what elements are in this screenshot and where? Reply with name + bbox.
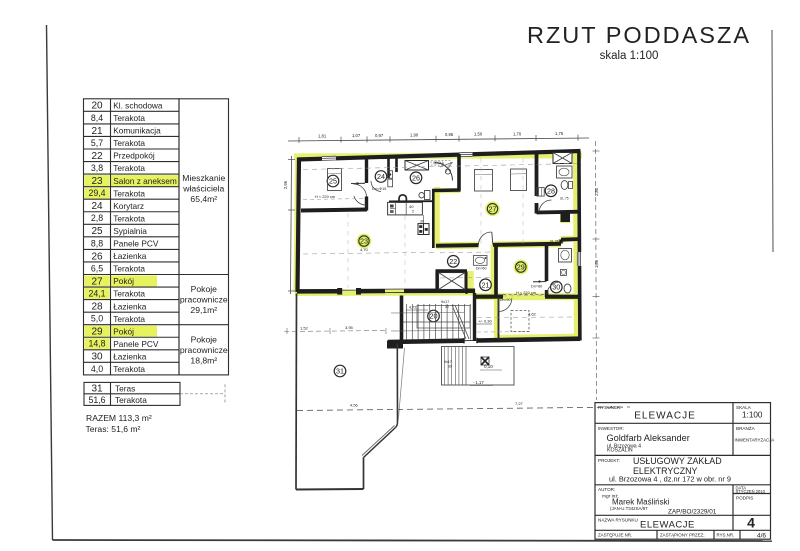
svg-text:SKALA: SKALA: [736, 405, 752, 410]
svg-text:Terakota: Terakota: [113, 138, 145, 148]
svg-text:21: 21: [482, 280, 490, 289]
svg-text:26: 26: [91, 251, 103, 262]
svg-text:- 1,17: - 1,17: [473, 380, 484, 385]
svg-text:Salon z aneksem: Salon z aneksem: [113, 176, 177, 186]
svg-text:pracownicze: pracownicze: [180, 295, 228, 305]
svg-text:RAZEM 113,3 m²: RAZEM 113,3 m²: [86, 413, 152, 423]
svg-text:3,8: 3,8: [91, 163, 103, 173]
svg-text:Dn=60: Dn=60: [476, 267, 486, 271]
svg-text:Teras: Teras: [115, 383, 135, 393]
svg-text:6,5: 6,5: [91, 263, 103, 273]
svg-text:Pokoje: Pokoje: [191, 284, 217, 294]
svg-text:4,70: 4,70: [360, 247, 369, 252]
svg-text:30: 30: [448, 365, 452, 369]
svg-text:28: 28: [547, 186, 555, 195]
svg-text:Terakota: Terakota: [113, 163, 145, 173]
svg-text:ZASTĄPIONY PRZEZ:: ZASTĄPIONY PRZEZ:: [660, 532, 705, 537]
svg-text:Panele PCV: Panele PCV: [113, 339, 159, 349]
svg-text:9x17: 9x17: [441, 300, 449, 304]
svg-text:ul. Brzozowa 4 , dz.nr 172 w o: ul. Brzozowa 4 , dz.nr 172 w obr. nr 9: [609, 474, 731, 483]
svg-text:8,8: 8,8: [91, 238, 103, 248]
svg-text:22: 22: [449, 257, 457, 266]
svg-text:Kl. schodowa: Kl. schodowa: [113, 100, 163, 110]
svg-text:31: 31: [91, 384, 103, 395]
svg-text:Terakota: Terakota: [113, 289, 145, 299]
svg-text:30: 30: [420, 220, 424, 224]
svg-text:24,1: 24,1: [88, 289, 105, 299]
svg-text:PODPIS: PODPIS: [736, 496, 753, 501]
svg-text:4,72: 4,72: [409, 306, 416, 310]
svg-text:ELEWACJE: ELEWACJE: [640, 520, 695, 531]
svg-text:Terakota: Terakota: [115, 395, 147, 405]
svg-text:18,8m²: 18,8m²: [190, 355, 217, 365]
svg-text:INWENTARYZACJA: INWENTARYZACJA: [735, 438, 775, 443]
svg-text:ELEWACJE: ELEWACJE: [634, 410, 696, 421]
svg-text:Przedpokój: Przedpokój: [113, 151, 155, 161]
svg-text:20: 20: [91, 101, 103, 112]
svg-text:14,8: 14,8: [88, 339, 105, 349]
svg-text:Terakota: Terakota: [113, 213, 145, 223]
svg-text:H < 220 cm: H < 220 cm: [315, 194, 335, 199]
svg-text:1,07: 1,07: [352, 133, 361, 138]
svg-text:65,4m²: 65,4m²: [190, 194, 217, 204]
svg-text:2,80: 2,80: [594, 187, 599, 196]
svg-text:4: 4: [747, 515, 755, 531]
svg-text:+/- 0,30: +/- 0,30: [478, 319, 492, 324]
svg-text:ZASTĘPUJE NR.: ZASTĘPUJE NR.: [598, 532, 632, 537]
svg-text:1,52: 1,52: [300, 326, 309, 331]
svg-text:USŁUGOWY ZAKŁAD: USŁUGOWY ZAKŁAD: [633, 456, 722, 466]
svg-text:1,86: 1,86: [594, 259, 599, 268]
svg-text:40: 40: [409, 204, 414, 209]
svg-text:Łazienka: Łazienka: [113, 301, 147, 311]
svg-text:Łazienka: Łazienka: [113, 351, 147, 361]
svg-text:22: 22: [91, 151, 103, 162]
svg-text:Łazienka: Łazienka: [113, 251, 147, 261]
svg-text:30: 30: [445, 305, 449, 309]
svg-text:AUTOR:: AUTOR:: [598, 487, 615, 492]
svg-text:5,7: 5,7: [91, 138, 103, 148]
svg-text:1,50: 1,50: [474, 132, 483, 137]
svg-text:1,70: 1,70: [513, 131, 522, 136]
svg-text:7,27: 7,27: [515, 401, 524, 406]
svg-text:26: 26: [412, 173, 420, 182]
svg-text:Terakota: Terakota: [113, 364, 145, 374]
svg-text:Sypialnia: Sypialnia: [113, 226, 147, 236]
svg-text:INWESTOR:: INWESTOR:: [598, 426, 624, 431]
svg-text:0,95: 0,95: [445, 132, 454, 137]
svg-text:25: 25: [91, 226, 103, 237]
svg-text:Goldfarb Aleksander: Goldfarb Aleksander: [607, 433, 690, 443]
svg-text:KOSZALIN: KOSZALIN: [607, 448, 633, 454]
svg-text:4,0: 4,0: [91, 364, 103, 374]
svg-text:23: 23: [360, 237, 368, 246]
svg-text:1,75: 1,75: [555, 131, 564, 136]
svg-text:29,4: 29,4: [88, 188, 105, 198]
svg-text:27: 27: [91, 276, 103, 287]
svg-text:1,81: 1,81: [318, 134, 327, 139]
svg-text:Dn=Φ15: Dn=Φ15: [372, 187, 386, 191]
svg-text:Panele PCV: Panele PCV: [113, 239, 159, 249]
svg-text:31: 31: [336, 367, 344, 376]
svg-text:3,95: 3,95: [345, 325, 354, 330]
svg-text:24: 24: [91, 201, 103, 212]
svg-text:RYS.NR.: RYS.NR.: [717, 532, 735, 537]
svg-text:UL.75: UL.75: [560, 197, 569, 201]
svg-text:Pokoje: Pokoje: [191, 334, 217, 344]
svg-text:27: 27: [489, 204, 497, 213]
svg-text:UL.76: UL.76: [550, 240, 559, 244]
svg-text:właściciela: właściciela: [182, 184, 224, 194]
svg-text:Pokój: Pokój: [113, 326, 134, 336]
svg-text:28: 28: [91, 301, 103, 312]
svg-text:2: 2: [412, 210, 414, 214]
svg-text:30: 30: [91, 352, 103, 363]
svg-text:0,97: 0,97: [375, 133, 384, 138]
svg-text:29: 29: [517, 263, 525, 272]
svg-text:Terakota: Terakota: [113, 264, 145, 274]
svg-text:0,10: 0,10: [484, 364, 493, 369]
svg-text:Terakota: Terakota: [113, 113, 145, 123]
svg-text:pracownicze: pracownicze: [180, 345, 228, 355]
svg-text:Pokój: Pokój: [113, 276, 134, 286]
svg-text:1:100: 1:100: [742, 410, 763, 419]
svg-text:2,8: 2,8: [91, 213, 103, 223]
svg-text:29: 29: [91, 327, 103, 338]
svg-text:23: 23: [91, 176, 103, 187]
svg-text:24: 24: [377, 172, 385, 181]
svg-text:(JAN-U.T342SA/97: (JAN-U.T342SA/97: [610, 506, 648, 511]
svg-text:5,0: 5,0: [91, 314, 103, 324]
svg-text:2,96: 2,96: [283, 180, 288, 189]
svg-text:RZUT PODDASZA: RZUT PODDASZA: [527, 22, 751, 48]
svg-text:Terakota: Terakota: [113, 188, 145, 198]
svg-text:STYCZEŃ 2010: STYCZEŃ 2010: [736, 489, 766, 494]
svg-text:21: 21: [91, 126, 103, 137]
svg-text:1,90: 1,90: [410, 132, 419, 137]
svg-text:RYSUNEK:: RYSUNEK:: [598, 405, 621, 410]
svg-text:51,6: 51,6: [88, 395, 105, 405]
svg-text:Dn=90: Dn=90: [500, 298, 510, 302]
svg-text:29,1m²: 29,1m²: [190, 305, 217, 315]
svg-text:CEGŁA: CEGŁA: [433, 161, 445, 165]
svg-text:Korytarz: Korytarz: [113, 201, 144, 211]
svg-text:4/6: 4/6: [757, 533, 766, 540]
svg-text:Terakota: Terakota: [113, 314, 145, 324]
svg-text:8,4: 8,4: [91, 113, 103, 123]
svg-text:Teras: 51,6 m²: Teras: 51,6 m²: [86, 424, 141, 434]
svg-text:Komunikacja: Komunikacja: [113, 126, 161, 136]
svg-text:Mieszkanie: Mieszkanie: [182, 173, 225, 183]
svg-text:skala 1:100: skala 1:100: [600, 50, 659, 62]
svg-text:BRANŻA: BRANŻA: [736, 425, 756, 431]
svg-text:9x17: 9x17: [444, 360, 452, 364]
svg-text:PROJEKT:: PROJEKT:: [598, 458, 620, 463]
svg-text:25: 25: [329, 177, 337, 186]
svg-text:4,56: 4,56: [350, 403, 359, 408]
svg-text:Dn=60: Dn=60: [531, 285, 542, 289]
svg-text:ZAP/BO/2329/01: ZAP/BO/2329/01: [668, 509, 717, 516]
svg-text:H < 220 cm: H < 220 cm: [516, 290, 536, 295]
svg-text:NAZWA RYSUNKU: NAZWA RYSUNKU: [598, 518, 638, 523]
